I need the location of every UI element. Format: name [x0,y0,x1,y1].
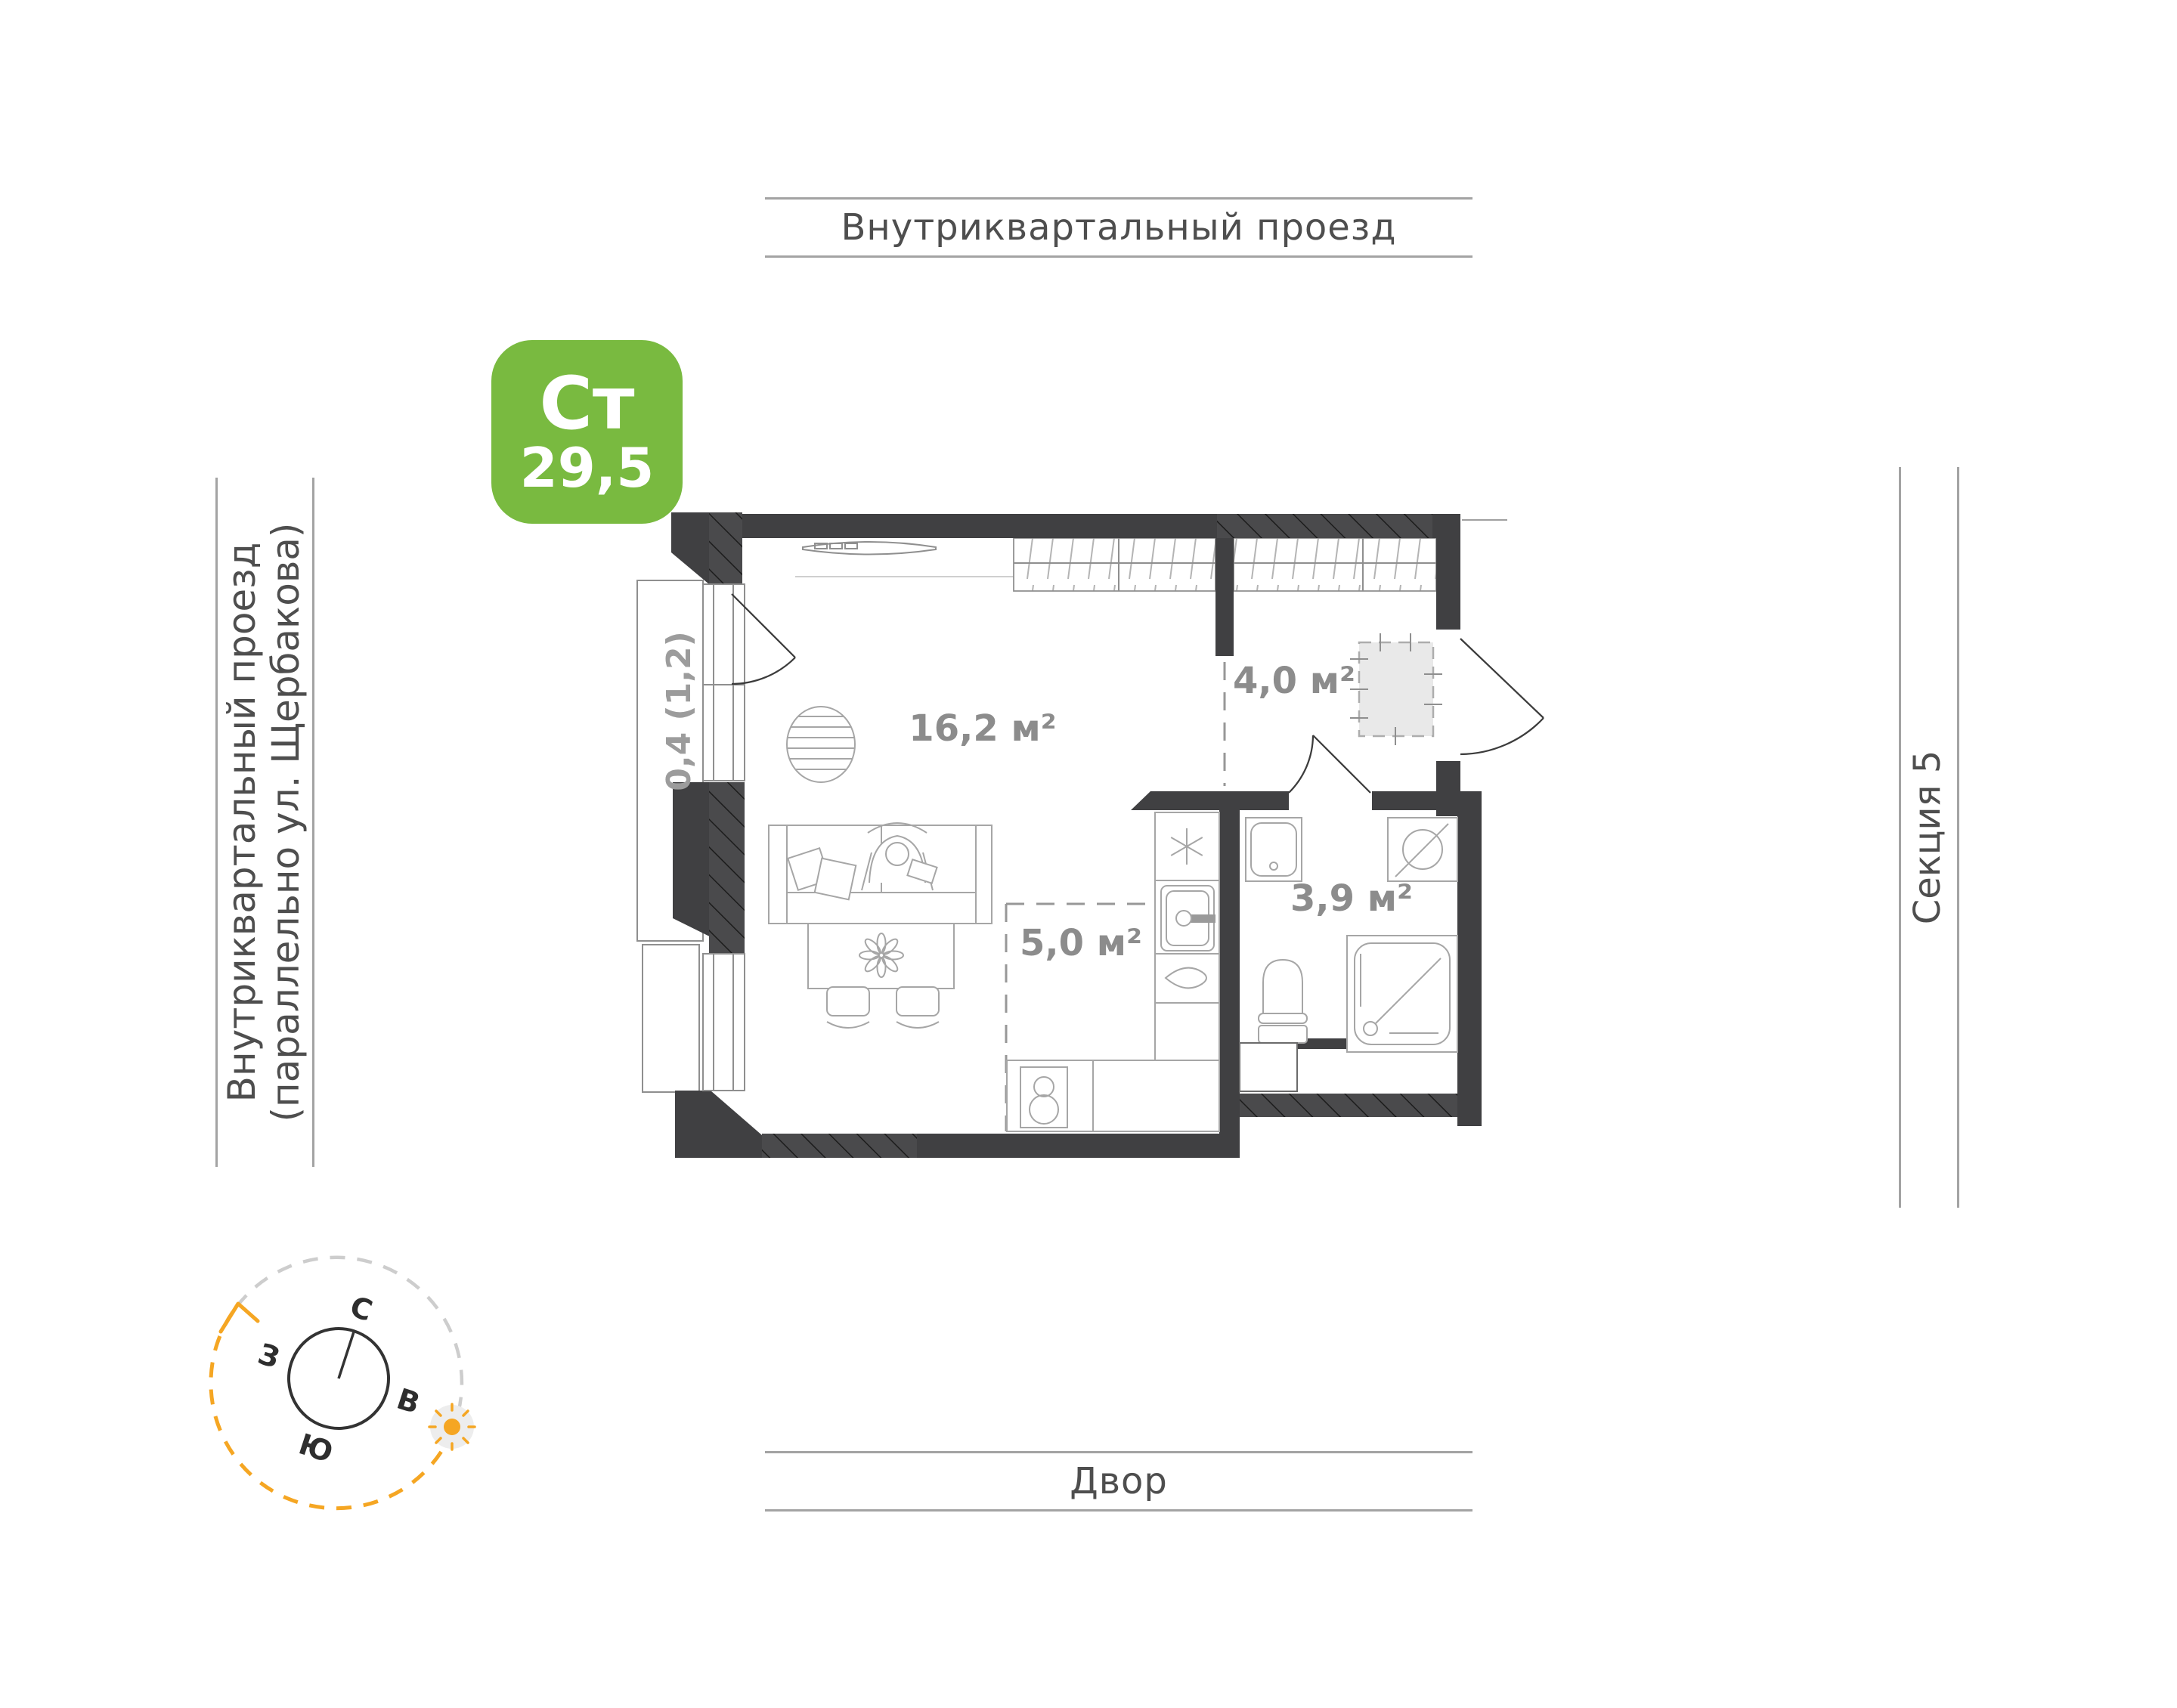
compass-arrow-icon [221,1304,258,1332]
kitchen-sink [1161,886,1215,951]
toilet [1259,960,1307,1043]
shower [1347,936,1457,1052]
room-label-balcony: 0,4 (1,2) [660,631,698,791]
bathroom-door [1289,735,1370,793]
radiator [803,542,936,555]
closet-band-living [1014,538,1215,591]
floor-plan-svg: 16,2 м² 4,0 м² 5,0 м² 3,9 м² 0,4 (1,2) С… [0,0,2177,1708]
room-label-hall: 4,0 м² [1233,660,1355,702]
compass-west-label: З [254,1337,283,1375]
compass-north-label: С [346,1290,376,1328]
dining-table [808,924,954,1028]
room-label-living: 16,2 м² [909,707,1056,750]
entrance-door [1460,639,1544,754]
window-upper [703,584,745,781]
compass-dial: С З В Ю [231,1267,447,1490]
compass-south-label: Ю [295,1427,337,1469]
stove [1020,1067,1067,1128]
bath-sink [1246,818,1302,881]
room-label-kitchen: 5,0 м² [1020,922,1142,964]
washing-machine [1388,818,1457,881]
bathroom-shaft [1240,1043,1297,1091]
floorplan-page: Внутриквартальный проезд Двор Внутриквар… [0,0,2177,1708]
sun-icon [429,1404,475,1450]
wardrobe [1350,633,1442,745]
room-label-bathroom: 3,9 м² [1290,877,1413,920]
compass-east-label: В [393,1382,424,1421]
decor-ball [787,707,855,782]
closet-band-hall [1234,538,1436,591]
compass: С З В Ю [211,1258,475,1508]
window-lower [703,954,745,1091]
